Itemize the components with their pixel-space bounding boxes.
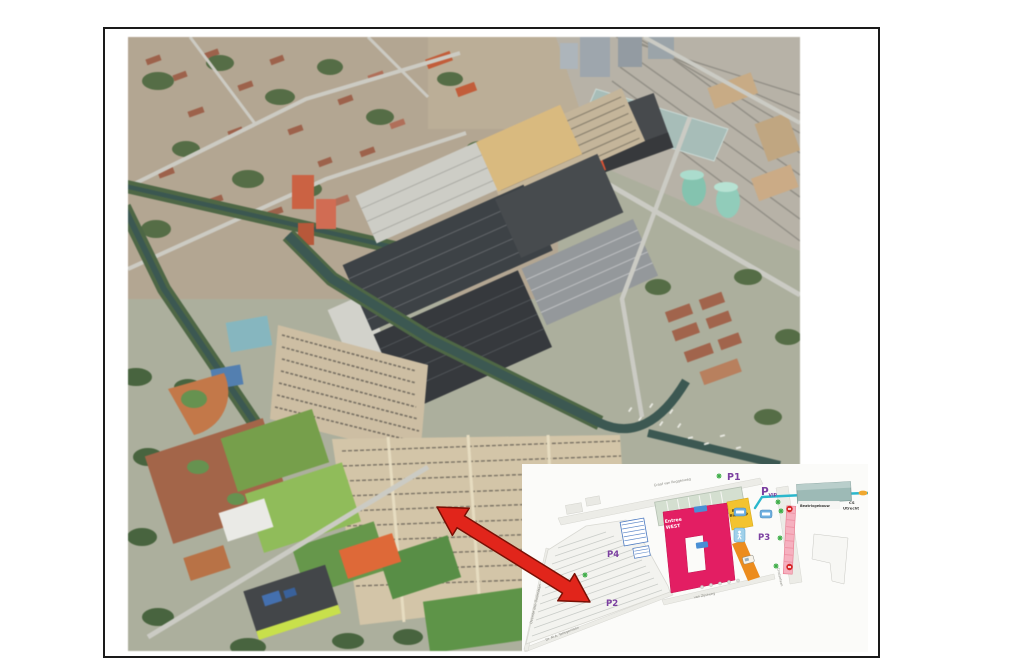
parking-label-p3: P3 xyxy=(758,533,770,543)
svg-text:CS: CS xyxy=(849,500,855,505)
station-marker-icon xyxy=(859,491,868,496)
pedestrian-icon xyxy=(734,528,745,542)
entree-west-building: Entree WEST xyxy=(663,503,735,593)
parking-label-p1: P1 xyxy=(727,472,741,483)
parking-label-pvip-sub: VIP xyxy=(769,493,778,499)
parking-label-p4: P4 xyxy=(607,550,619,560)
beatrixgebouw-label: Beatrixgebouw xyxy=(800,504,831,508)
svg-text:Utrecht: Utrecht xyxy=(843,506,859,511)
parking-label-p2: P2 xyxy=(606,599,618,609)
slide-frame: Entree WEST Beurs Bioscoop xyxy=(103,27,880,658)
venue-map: Entree WEST Beurs Bioscoop xyxy=(522,464,868,652)
